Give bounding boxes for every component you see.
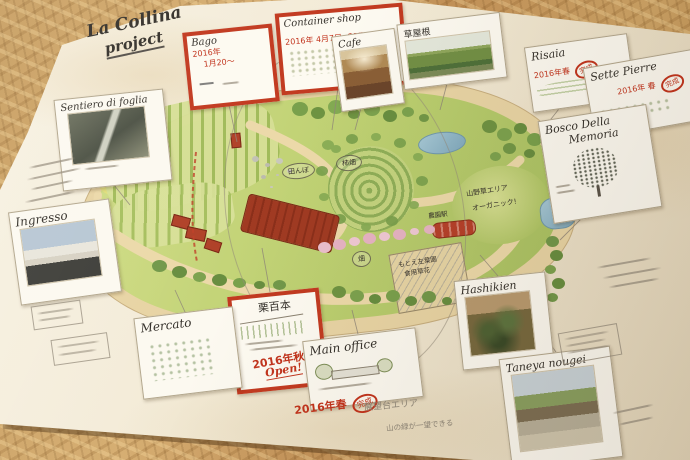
ingresso-photo	[19, 219, 102, 287]
risaia-date: 2016年春	[533, 66, 570, 80]
card-cafe: Cafe	[331, 28, 405, 112]
card-kusayane: 草屋根	[396, 12, 507, 90]
container-shop-label: Container shop	[283, 9, 396, 30]
red-dashed-trail	[192, 152, 197, 262]
taneya-photo	[511, 365, 604, 453]
photo-of-la-collina-map: 田んぼ 柿畑 畑 山野草エリア オーガニック! もとえ左葉園 食用草花 農園駅 …	[0, 0, 690, 460]
card-mercato: Mercato	[133, 306, 242, 400]
cafe-photo	[339, 44, 393, 100]
card-ingresso: Ingresso	[8, 198, 122, 305]
card-taneya: Taneya nougei	[499, 346, 624, 460]
mercato-sketch	[148, 336, 214, 381]
sentiero-photo	[67, 106, 150, 166]
card-sentiero: Sentiero di foglia	[53, 89, 172, 192]
sette-stamp: 完成	[658, 71, 687, 96]
sette-date: 2016年 春	[616, 81, 656, 97]
card-bosco: Bosco Della Memoria	[538, 104, 663, 224]
hashikien-photo	[464, 290, 536, 357]
office-sketch-building	[331, 365, 380, 380]
bosco-tree-canopy	[570, 144, 622, 191]
note-box-bago: Bago 2016年 1月20～	[182, 24, 280, 111]
office-date: 2016年春	[294, 398, 348, 417]
